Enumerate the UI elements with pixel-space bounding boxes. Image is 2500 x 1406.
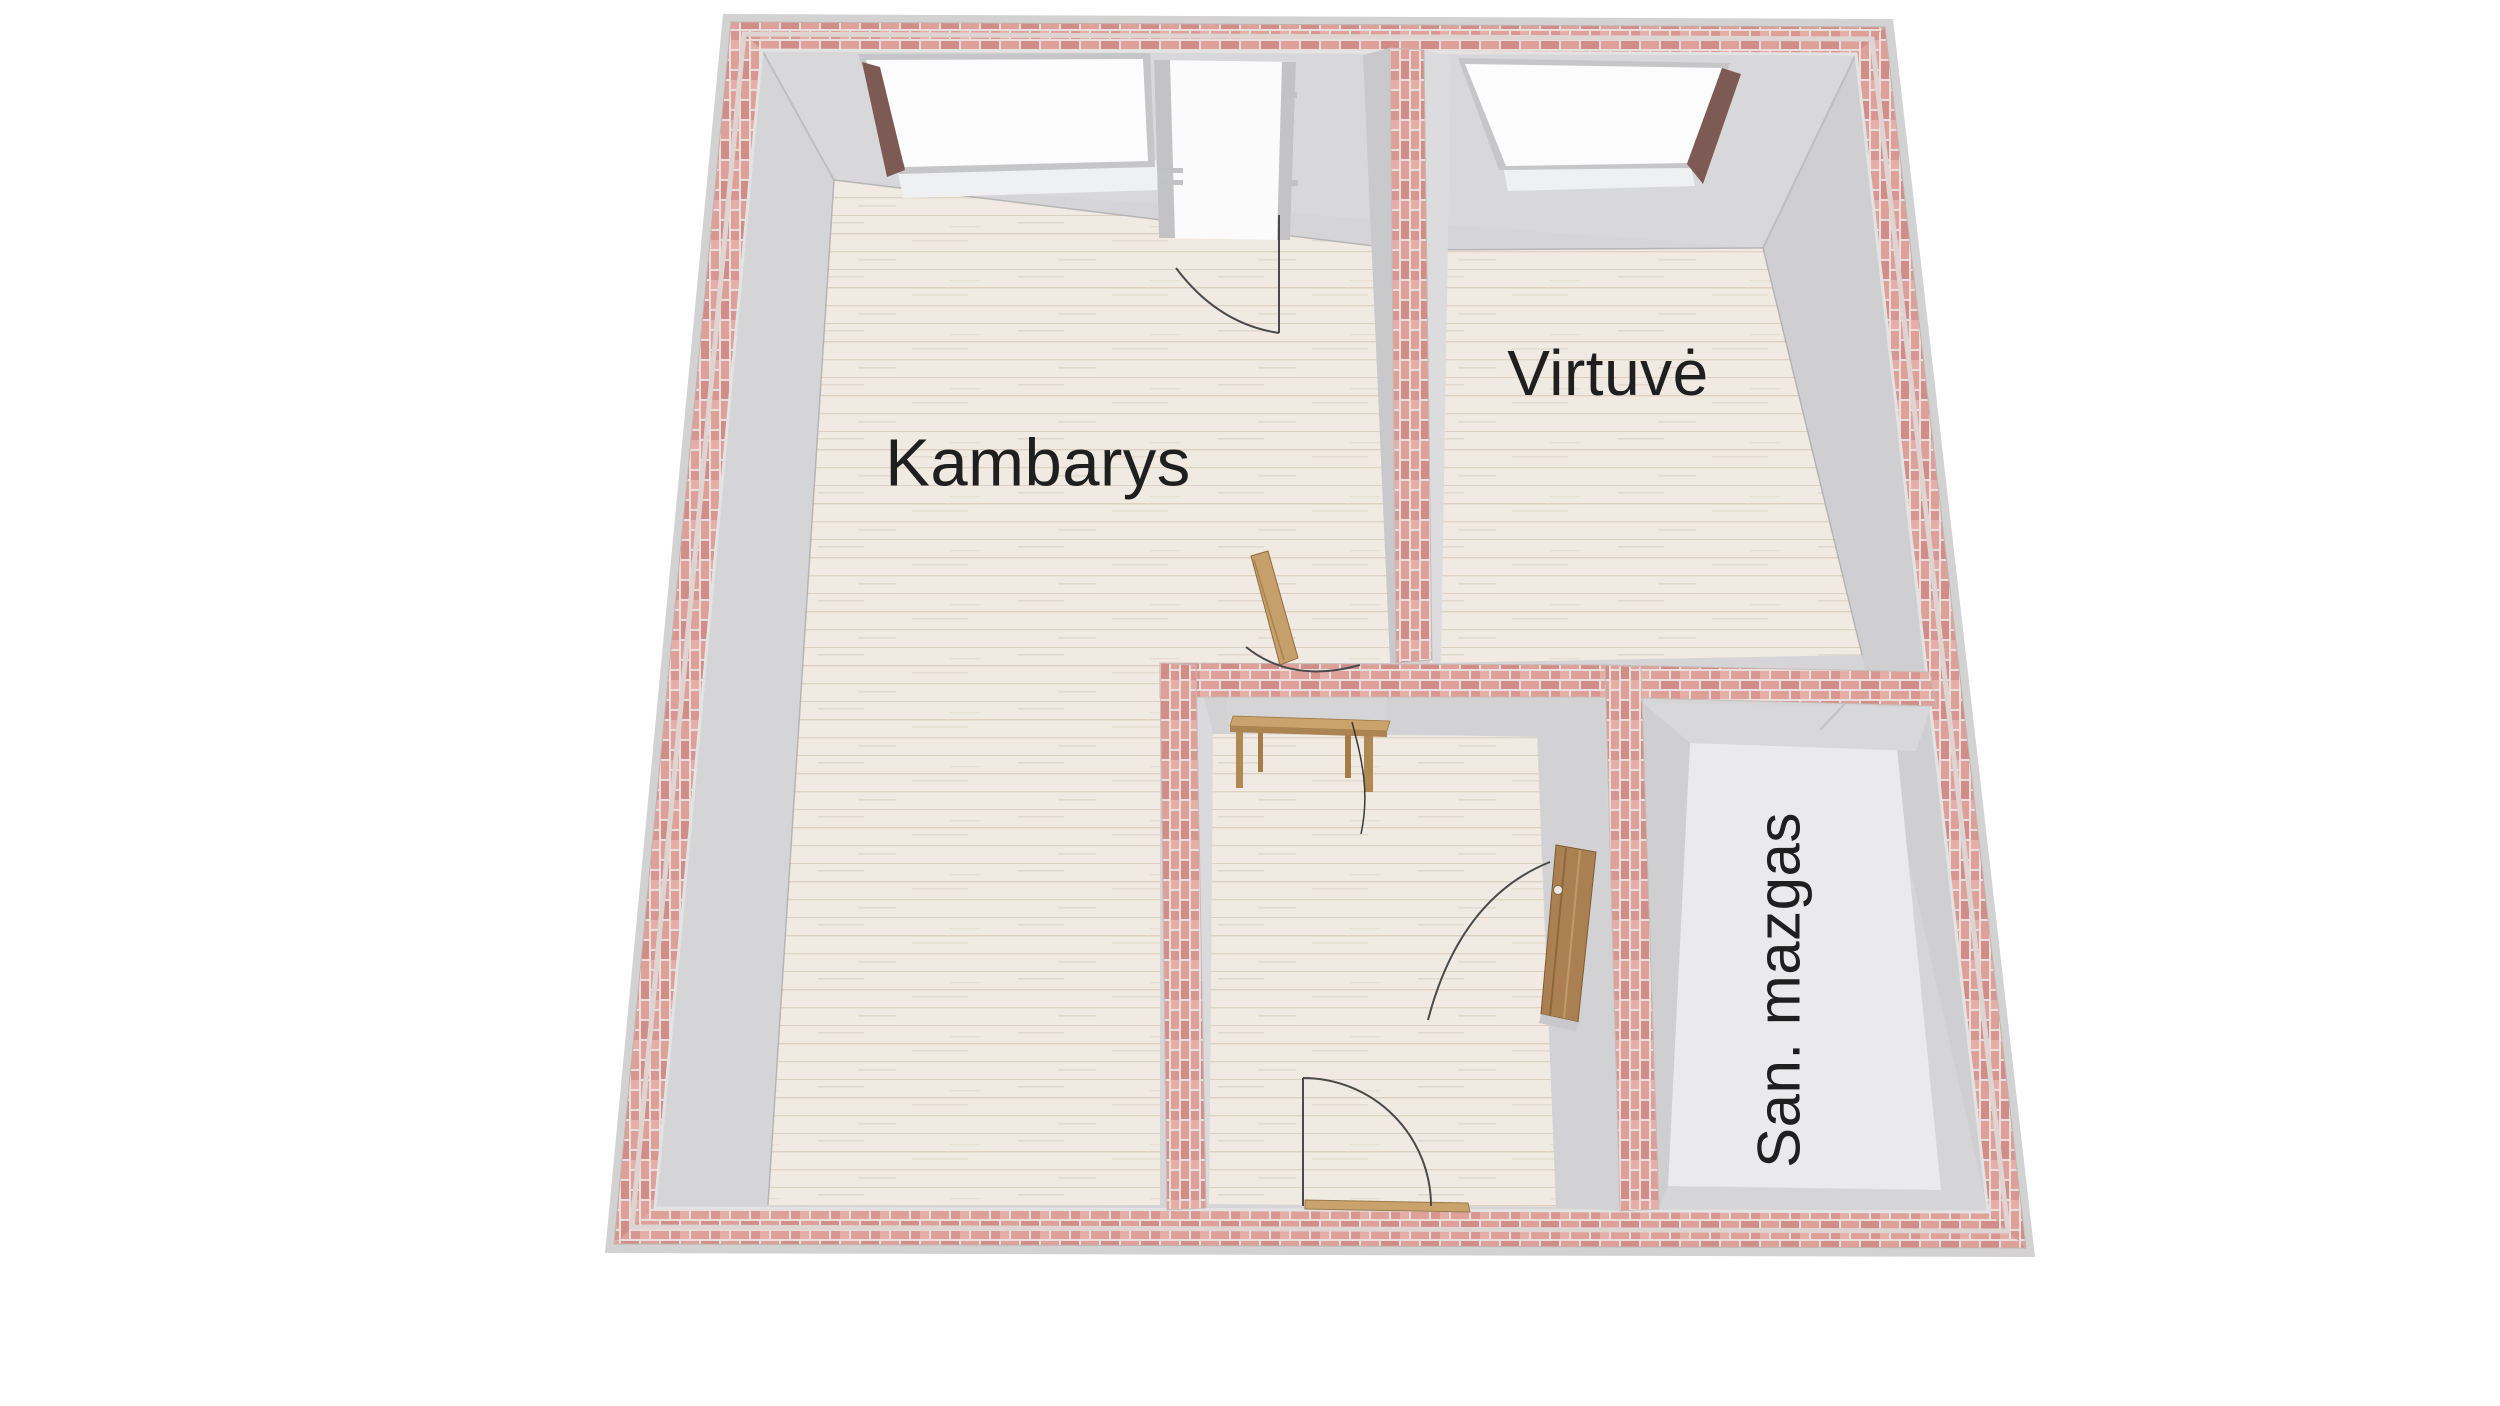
floor-plan-canvas: Kambarys Virtuvė San. mazgas xyxy=(0,0,2500,1406)
room-label-kambarys: Kambarys xyxy=(885,425,1191,502)
floor-hallway xyxy=(1209,734,1556,1207)
room-label-san-mazgas: San. mazgas xyxy=(1745,812,1814,1168)
window-kambarys xyxy=(858,53,1160,198)
wall-hall-north-brick xyxy=(1160,663,1607,697)
room-label-virtuve: Virtuvė xyxy=(1507,336,1709,410)
floor-plan-rendering xyxy=(0,0,2500,1406)
